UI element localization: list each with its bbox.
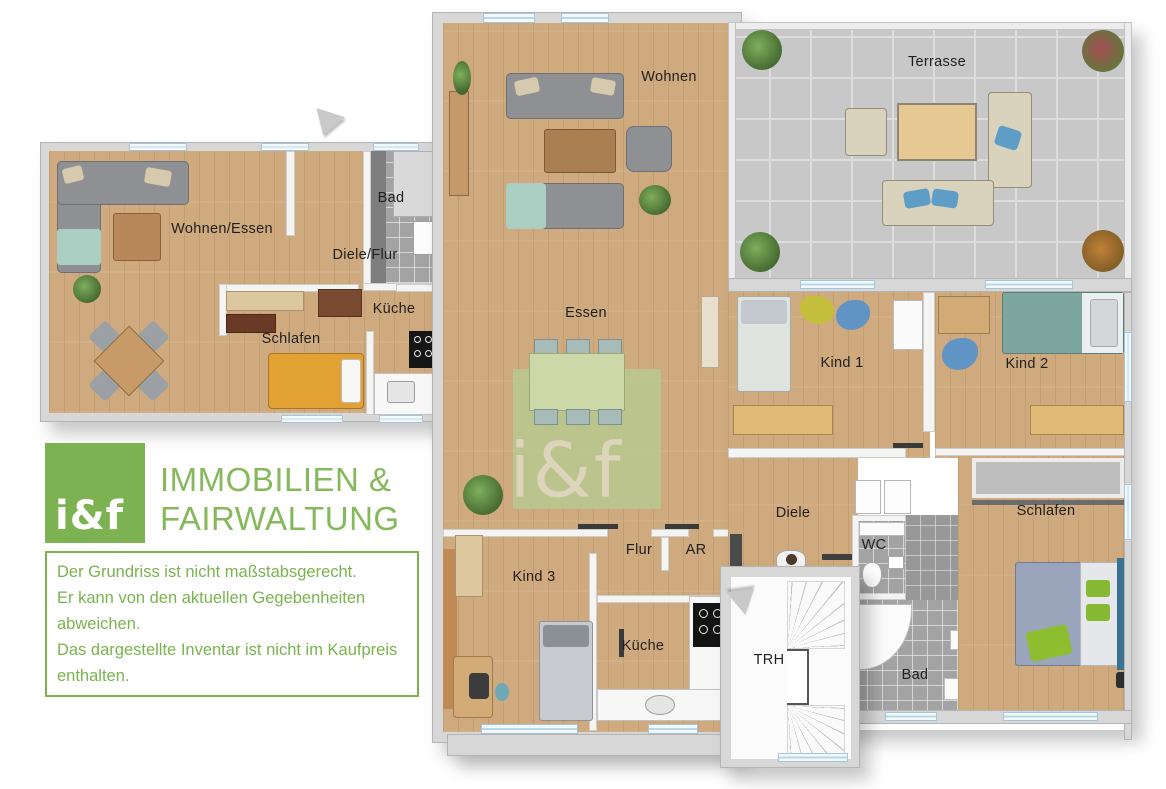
disclaimer-box: Der Grundriss ist nicht maßstabsgerecht.… xyxy=(45,551,419,697)
room-label-bad-left: Bad xyxy=(378,190,405,206)
beanbag xyxy=(800,296,834,324)
green-pillow xyxy=(1086,580,1110,597)
kitchen-sink xyxy=(645,695,675,715)
built-in-wardrobe xyxy=(972,458,1124,498)
floorplan-page: Wohnen/Essen Diele/Flur Bad Küche Schlaf… xyxy=(0,0,1166,789)
wc-cabinet xyxy=(859,522,905,536)
desk-chair xyxy=(469,673,489,699)
room-label-diele: Diele xyxy=(776,505,811,521)
outdoor-table xyxy=(897,103,977,161)
shelf xyxy=(449,91,469,196)
dining-chair xyxy=(534,409,558,425)
sideboard xyxy=(1030,405,1124,435)
kitchen-sink xyxy=(387,381,415,403)
room-label-trh: TRH xyxy=(754,652,785,668)
left-apartment xyxy=(40,142,445,422)
bench xyxy=(733,405,833,435)
wardrobe xyxy=(455,535,483,597)
wall xyxy=(366,331,374,415)
shelf xyxy=(893,300,923,350)
window xyxy=(1003,712,1098,721)
wall xyxy=(661,537,669,571)
parapet-wall xyxy=(447,734,737,756)
small-sink xyxy=(888,556,904,569)
entrance-arrow-icon xyxy=(309,108,345,140)
terrace-railing xyxy=(728,22,736,284)
terrace-railing xyxy=(1124,22,1132,284)
wall xyxy=(651,529,689,537)
sofa-blanket xyxy=(506,183,546,229)
green-pillow xyxy=(1086,604,1110,621)
wall xyxy=(935,448,1132,456)
desk xyxy=(938,296,990,334)
shaft-box xyxy=(884,480,911,514)
window xyxy=(483,13,535,23)
plant xyxy=(740,232,780,272)
room-label-kind3: Kind 3 xyxy=(513,569,556,585)
stair-landing xyxy=(787,649,809,705)
burner xyxy=(699,625,708,634)
hall-shelf xyxy=(701,296,719,368)
wall xyxy=(286,151,295,236)
plant xyxy=(73,275,101,303)
outdoor-armchair xyxy=(845,108,887,156)
window xyxy=(281,415,343,423)
burner xyxy=(425,336,432,343)
bed-pillow xyxy=(741,300,787,324)
plant xyxy=(1082,230,1124,272)
window xyxy=(800,280,875,289)
bed-pillow xyxy=(341,359,361,403)
plant xyxy=(463,475,503,515)
sofa-blanket xyxy=(57,229,101,265)
window xyxy=(561,13,609,23)
room-label-diele-flur: Diele/Flur xyxy=(332,247,397,263)
plant xyxy=(1082,30,1124,72)
window xyxy=(379,415,423,423)
watermark-logo: i&f xyxy=(509,426,622,515)
sideboard xyxy=(226,291,304,311)
room-label-kind2: Kind 2 xyxy=(1006,356,1049,372)
room-label-kueche-main: Küche xyxy=(622,638,665,654)
coffee-table xyxy=(113,213,161,261)
disclaimer-line1: Der Grundriss ist nicht maßstabsgerecht. xyxy=(57,559,407,585)
burner xyxy=(414,350,421,357)
room-label-schlafen-left: Schlafen xyxy=(262,331,321,347)
wall xyxy=(923,292,935,432)
room-label-wc: WC xyxy=(862,537,887,553)
window xyxy=(1124,484,1132,540)
armchair xyxy=(626,126,672,172)
window xyxy=(885,712,937,721)
bed-pillow xyxy=(543,625,589,647)
door-lintel xyxy=(578,524,618,529)
room-label-kind1: Kind 1 xyxy=(821,355,864,371)
room-label-kueche-left: Küche xyxy=(373,301,416,317)
wall xyxy=(363,151,371,291)
window xyxy=(373,143,419,151)
room-label-wohnen: Wohnen xyxy=(641,69,697,85)
room-label-terrasse: Terrasse xyxy=(908,54,966,70)
burner xyxy=(699,609,708,618)
room-label-schlafen-main: Schlafen xyxy=(1017,503,1076,519)
flower xyxy=(786,554,797,565)
plant xyxy=(742,30,782,70)
disclaimer-line2: Er kann von den aktuellen Gegebenheiten … xyxy=(57,585,407,637)
left-bad-dark-band xyxy=(369,151,386,283)
plant xyxy=(639,185,671,215)
stairs-lower xyxy=(787,705,845,755)
window xyxy=(261,143,309,151)
company-name-line1: IMMOBILIEN & xyxy=(160,461,460,499)
bed-pillow xyxy=(1090,299,1118,347)
plant xyxy=(453,61,471,95)
window xyxy=(648,724,698,734)
dining-table xyxy=(529,353,625,411)
burner xyxy=(414,336,421,343)
company-logo-text: i&f xyxy=(55,493,124,539)
window xyxy=(481,724,578,734)
window xyxy=(129,143,187,151)
door-lintel xyxy=(893,443,923,448)
burner xyxy=(425,350,432,357)
disclaimer-line3: Das dargestellte Inventar ist nicht im K… xyxy=(57,637,407,689)
room-label-flur: Flur xyxy=(626,542,652,558)
coffee-table xyxy=(544,129,616,173)
coat-rack xyxy=(730,534,742,568)
main-apartment xyxy=(432,12,742,743)
wardrobe xyxy=(318,289,362,317)
blue-cushion xyxy=(931,188,959,208)
company-name-line2: FAIRWALTUNG xyxy=(160,500,460,538)
terrace-railing xyxy=(728,22,1132,30)
shaft-box xyxy=(855,480,881,514)
toilet xyxy=(862,562,882,588)
stairs-upper xyxy=(787,581,845,649)
room-label-ar: AR xyxy=(686,542,707,558)
room-label-wohnen-essen: Wohnen/Essen xyxy=(171,221,273,237)
room-label-bad-main: Bad xyxy=(902,667,929,683)
window xyxy=(778,753,848,762)
room-label-essen: Essen xyxy=(565,305,607,321)
dining-chair xyxy=(598,409,622,425)
door-lintel xyxy=(665,524,699,529)
window xyxy=(985,280,1073,289)
lamp xyxy=(495,683,509,701)
wall xyxy=(728,448,906,458)
dining-chair xyxy=(566,409,590,425)
company-logo: i&f xyxy=(45,443,145,543)
window xyxy=(1124,332,1132,402)
